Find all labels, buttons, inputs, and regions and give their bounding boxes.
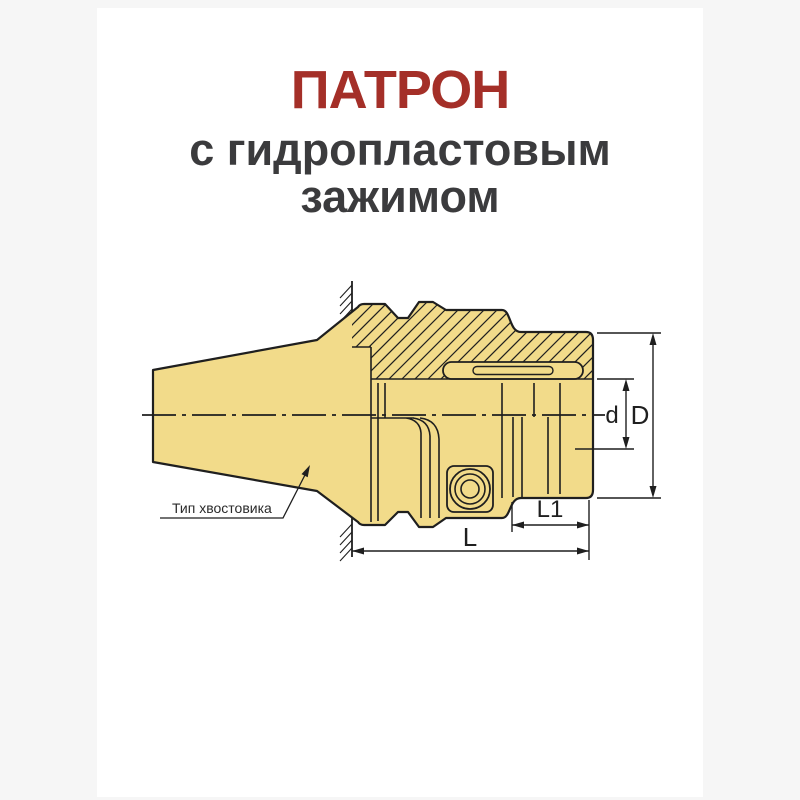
drive-slot	[443, 362, 583, 379]
dim-L1-label: L1	[537, 496, 564, 523]
dim-d-label: d	[605, 402, 618, 429]
technical-drawing: D d L1 L Тип хв	[0, 0, 800, 800]
product-image: ПАТРОН с гидропластовым зажимом	[0, 0, 800, 800]
shank-type-label: Тип хвостовика	[172, 500, 272, 516]
dim-L-label: L	[463, 522, 477, 552]
dim-D-label: D	[631, 400, 650, 430]
